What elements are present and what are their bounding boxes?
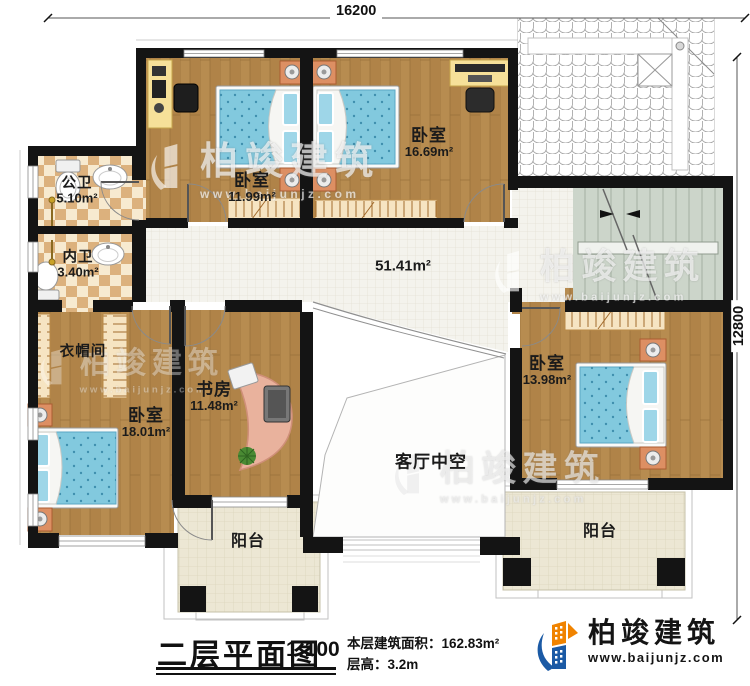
balcony-pillar: [292, 586, 318, 612]
stair-hall-floor: [512, 187, 573, 288]
room-label-living-void: 客厅中空: [395, 452, 467, 471]
caption-floor-height: 层高：3.2m: [347, 654, 499, 675]
brand-building-icon: [534, 617, 582, 673]
balcony-pillar: [180, 586, 206, 612]
roof-gutter: [672, 38, 688, 170]
caption-info: 本层建筑面积：162.83m² 层高：3.2m: [347, 633, 499, 675]
room-label-corridor: 51.41m²: [375, 259, 431, 276]
room-label-private-bath: 内卫3.40m²: [57, 250, 98, 281]
toilet: [56, 160, 80, 172]
room-label-cloakroom: 衣帽间: [60, 344, 107, 360]
room-label-balcony-right: 阳台: [583, 523, 617, 541]
caption-floor-area: 本层建筑面积：162.83m²: [347, 633, 499, 654]
room-label-bedroom-1: 卧室11.99m²: [228, 171, 276, 205]
bath-door-opening: [132, 180, 146, 220]
stair-landing-rail: [578, 242, 718, 254]
corridor-floor: [133, 226, 565, 302]
balcony-pillar: [657, 558, 685, 586]
room-label-bedroom-4: 卧室18.01m²: [122, 406, 170, 440]
chair: [466, 88, 494, 112]
brand-logo: 柏竣建筑 www.baijunjz.com: [534, 617, 724, 673]
room-label-bedroom-2: 卧室16.69m²: [405, 126, 453, 160]
chair: [174, 84, 198, 112]
room-label-public-bath: 公卫5.10m²: [56, 176, 97, 207]
dimension-top-label: 16200: [330, 3, 382, 19]
caption-scale: 1:100: [286, 638, 340, 662]
balcony-pillar: [503, 558, 531, 586]
room-label-study: 书房11.48m²: [190, 380, 238, 414]
floor-plan-page: 16200 12800 柏竣建筑 www.baijunjz.com 柏竣建筑 w…: [0, 0, 750, 686]
brand-name: 柏竣建筑: [588, 617, 724, 649]
room-label-balcony-left: 阳台: [231, 533, 265, 551]
brand-url: www.baijunjz.com: [588, 650, 724, 665]
floor-plan-drawing: [0, 0, 750, 686]
roof-gutter: [528, 38, 688, 54]
room-label-bedroom-3: 卧室13.98m²: [523, 354, 571, 388]
caption-underline: [156, 673, 336, 675]
dimension-right-label: 12800: [731, 300, 747, 352]
caption-underline: [156, 667, 336, 670]
